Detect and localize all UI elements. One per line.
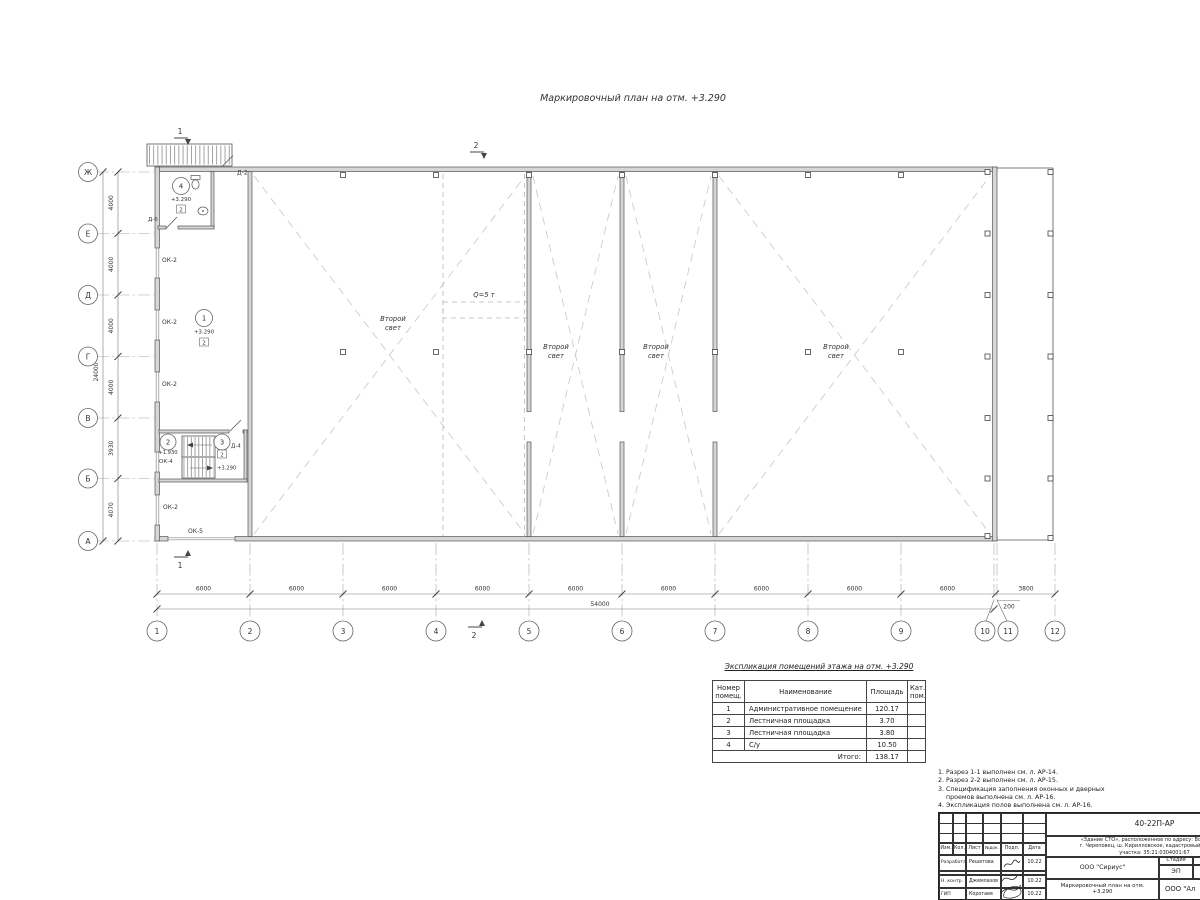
svg-text:2: 2 — [472, 631, 477, 640]
svg-text:Второй: Второй — [823, 343, 849, 351]
cell-cat — [908, 751, 926, 763]
table-row: 3 Лестничная площадка 3.80 — [713, 727, 926, 739]
second-light-labels: Второй свет Второй свет Второй свет Втор… — [380, 315, 849, 360]
svg-text:6000: 6000 — [568, 586, 583, 593]
table-row: 4 С/у 10.50 — [713, 739, 926, 751]
sheet-title: Маркировочный план на отм. +3.290 — [1046, 879, 1159, 900]
date-cell: 10.22 — [1023, 875, 1046, 888]
svg-text:6000: 6000 — [475, 586, 490, 593]
rev-divider — [939, 833, 1046, 834]
svg-text:4: 4 — [434, 627, 439, 636]
sheet-value: 12 — [1193, 865, 1200, 879]
svg-text:54000: 54000 — [590, 601, 609, 608]
svg-text:4000: 4000 — [108, 379, 115, 394]
section-marks: 1 1 2 2 — [174, 127, 487, 640]
svg-text:200: 200 — [1003, 604, 1015, 611]
table-total-row: Итого: 138.17 — [713, 751, 926, 763]
grid-lines — [97, 172, 1055, 621]
svg-text:3: 3 — [341, 627, 346, 636]
contractor-org: ООО "Ал — [1159, 879, 1200, 900]
note-line: 4. Экспликация полов выполнена см. л. АР… — [938, 802, 1158, 810]
svg-text:ОК-2: ОК-2 — [163, 504, 178, 511]
role-cell: Н. контр. — [939, 875, 966, 888]
role-cell: ГИП — [939, 888, 966, 900]
table-header-row: Номер помещ. Наименование Площадь Кат. п… — [713, 681, 926, 703]
svg-text:6: 6 — [620, 627, 625, 636]
svg-text:Д: Д — [85, 291, 91, 300]
svg-text:4070: 4070 — [108, 502, 115, 517]
svg-text:4000: 4000 — [108, 195, 115, 210]
rev-cell — [983, 813, 1001, 843]
svg-text:10: 10 — [980, 627, 990, 636]
svg-text:Второй: Второй — [543, 343, 569, 351]
svg-text:3930: 3930 — [108, 440, 115, 455]
rev-divider — [939, 823, 1046, 824]
cell-area: 3.80 — [867, 727, 908, 739]
svg-text:1: 1 — [202, 315, 206, 323]
cell-num: 1 — [713, 703, 745, 715]
svg-text:ОК-5: ОК-5 — [188, 528, 203, 535]
svg-text:ОК-4: ОК-4 — [159, 459, 173, 465]
cell-cat — [908, 715, 926, 727]
svg-text:6000: 6000 — [196, 586, 211, 593]
signature-icon — [1002, 858, 1022, 870]
table-row: 1 Административное помещение 120.17 — [713, 703, 926, 715]
note-line: проемов выполнена см. л. АР-16. — [938, 794, 1158, 802]
cell-num: 4 — [713, 739, 745, 751]
note-line: 2. Разрез 2-2 выполнен см. л. АР-15. — [938, 777, 1158, 785]
cell-name: Административное помещение — [745, 703, 867, 715]
rev-cell — [1001, 813, 1023, 843]
svg-text:5: 5 — [527, 627, 532, 636]
svg-text:2: 2 — [220, 452, 223, 458]
annex-outline — [997, 168, 1053, 540]
col-list: Лист — [966, 843, 983, 855]
explication: Экспликация помещений этажа на отм. +3.2… — [712, 662, 926, 763]
col-kol: Кол. — [953, 843, 966, 855]
svg-text:Ж: Ж — [84, 168, 92, 177]
svg-text:+3.290: +3.290 — [194, 330, 215, 336]
date-cell: 10.22 — [1023, 855, 1046, 871]
doc-number: 40-22П-АР — [1046, 813, 1200, 836]
col-header-name: Наименование — [745, 681, 867, 703]
svg-text:свет: свет — [548, 352, 565, 360]
svg-text:Второй: Второй — [643, 343, 669, 351]
cell-cat — [908, 703, 926, 715]
svg-text:Е: Е — [86, 229, 91, 238]
rev-cell — [939, 813, 953, 843]
svg-text:7: 7 — [713, 627, 718, 636]
dimensions-bottom: 6000 6000 6000 6000 6000 6000 6000 6000 … — [154, 586, 1059, 613]
svg-text:2: 2 — [474, 141, 479, 150]
svg-text:свет: свет — [828, 352, 845, 360]
explication-table: Номер помещ. Наименование Площадь Кат. п… — [712, 680, 926, 763]
svg-text:2: 2 — [179, 207, 183, 213]
svg-text:6000: 6000 — [754, 586, 769, 593]
svg-text:6000: 6000 — [847, 586, 862, 593]
svg-text:4: 4 — [179, 183, 183, 191]
svg-text:Б: Б — [85, 474, 90, 483]
svg-text:Второй: Второй — [380, 315, 406, 323]
svg-text:1: 1 — [155, 627, 160, 636]
design-org: ООО "Сириус" — [1046, 857, 1159, 879]
svg-text:9: 9 — [899, 627, 904, 636]
svg-text:свет: свет — [648, 352, 665, 360]
title-block: Изм. Кол. Лист №док. Подп. Дата Разработ… — [938, 812, 1200, 900]
cell-name: С/у — [745, 739, 867, 751]
svg-text:4000: 4000 — [108, 256, 115, 271]
role-cell: Разработал — [939, 855, 966, 871]
axis-bubbles-left: Ж Е Д Г В Б А — [79, 163, 98, 551]
cell-area: 120.17 — [867, 703, 908, 715]
table-row: 2 Лестничная площадка 3.70 — [713, 715, 926, 727]
cell-num: 3 — [713, 727, 745, 739]
signature-icon — [998, 871, 1026, 900]
plan-title: Маркировочный план на отм. +3.290 — [540, 93, 726, 104]
svg-text:ОК-2: ОК-2 — [162, 319, 177, 326]
col-date: Дата — [1023, 843, 1046, 855]
svg-text:4000: 4000 — [108, 318, 115, 333]
svg-text:1: 1 — [178, 561, 183, 570]
explication-title: Экспликация помещений этажа на отм. +3.2… — [712, 662, 926, 671]
svg-text:8: 8 — [806, 627, 811, 636]
col-podp: Подп. — [1001, 843, 1023, 855]
cell-name: Лестничная площадка — [745, 727, 867, 739]
col-header-num: Номер помещ. — [713, 681, 745, 703]
cell-cat — [908, 739, 926, 751]
project-address: «Здание СТО», расположенное по адресу: В… — [1046, 836, 1200, 857]
rev-cell — [1023, 813, 1046, 843]
svg-text:2: 2 — [248, 627, 253, 636]
name-cell: Джемлазов — [966, 875, 1001, 888]
date-cell: 10.22 — [1023, 888, 1046, 900]
col-izm: Изм. — [939, 843, 953, 855]
stair-flights — [182, 436, 215, 478]
svg-text:6000: 6000 — [661, 586, 676, 593]
cell-num: 2 — [713, 715, 745, 727]
drawing-sheet: Маркировочный план на отм. +3.290 Q=5 т — [0, 0, 1200, 900]
svg-text:3: 3 — [220, 439, 224, 447]
svg-text:1: 1 — [178, 127, 183, 136]
svg-text:6000: 6000 — [289, 586, 304, 593]
cell-cat — [908, 727, 926, 739]
rev-cell — [953, 813, 966, 843]
svg-text:6000: 6000 — [382, 586, 397, 593]
sheet-label: Лист — [1193, 857, 1200, 865]
address-line: участка: 35:21:0304001:67 — [1119, 850, 1189, 856]
cell-area: 3.70 — [867, 715, 908, 727]
name-cell: Решетова — [966, 855, 1001, 871]
svg-text:+1.930: +1.930 — [158, 450, 177, 456]
toilet-fixtures — [191, 176, 208, 216]
notes: 1. Разрез 1-1 выполнен см. л. АР-14. 2. … — [938, 769, 1158, 810]
total-label: Итого: — [713, 751, 867, 763]
note-line: 1. Разрез 1-1 выполнен см. л. АР-14. — [938, 769, 1158, 777]
svg-text:ОК-2: ОК-2 — [162, 257, 177, 264]
svg-text:свет: свет — [385, 324, 402, 332]
axis-bubbles-bottom: 1 2 3 4 5 6 7 8 9 10 11 12 — [147, 621, 1065, 641]
svg-text:В: В — [85, 414, 90, 423]
exterior-stair — [147, 144, 233, 167]
floor-plan-canvas: Маркировочный план на отм. +3.290 Q=5 т — [0, 0, 1200, 900]
svg-text:2: 2 — [166, 439, 170, 447]
svg-text:12: 12 — [1050, 627, 1060, 636]
note-line: 3. Спецификация заполнения оконных и две… — [938, 786, 1158, 794]
col-header-area: Площадь — [867, 681, 908, 703]
svg-text:11: 11 — [1003, 627, 1013, 636]
svg-text:+3.290: +3.290 — [217, 466, 236, 472]
col-ndoc: №док. — [983, 843, 1001, 855]
svg-text:Д-4: Д-4 — [231, 444, 241, 450]
col-header-cat: Кат. пом. — [908, 681, 926, 703]
svg-text:А: А — [85, 537, 91, 546]
svg-text:24000: 24000 — [93, 362, 100, 381]
name-cell: Коротаев — [966, 888, 1001, 900]
svg-text:6000: 6000 — [940, 586, 955, 593]
svg-text:Г: Г — [86, 352, 91, 361]
total-value: 138.17 — [867, 751, 908, 763]
svg-text:Д-6: Д-6 — [148, 217, 158, 223]
stage-value: ЭП — [1159, 865, 1193, 879]
columns — [341, 170, 1054, 541]
svg-text:Д-2: Д-2 — [237, 170, 248, 177]
crane-label: Q=5 т — [473, 291, 496, 299]
svg-text:ОК-2: ОК-2 — [162, 381, 177, 388]
svg-text:2: 2 — [202, 340, 206, 346]
svg-text:+3.290: +3.290 — [171, 197, 192, 203]
cell-name: Лестничная площадка — [745, 715, 867, 727]
rev-cell — [966, 813, 983, 843]
svg-text:3800: 3800 — [1018, 586, 1033, 593]
stage-label: Стадия — [1159, 857, 1193, 865]
cell-area: 10.50 — [867, 739, 908, 751]
